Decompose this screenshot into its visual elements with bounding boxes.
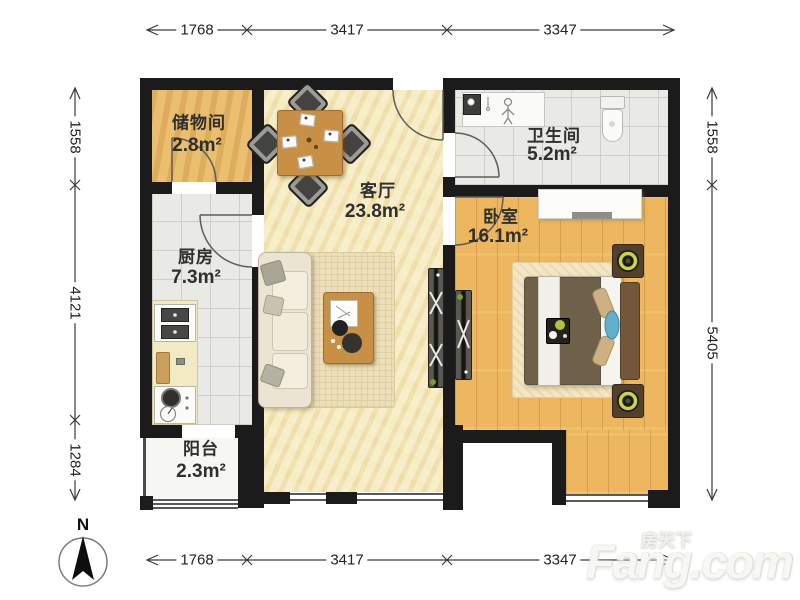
wall-top-right [443,78,680,90]
cutting-board [156,352,170,384]
sofa-pillow [262,294,285,317]
floorplan-image: 储物间 2.8m² 客厅 23.8m² 卫生间 5.2m² 卧室 16.1m² … [0,0,800,600]
dim-left-1: 1558 [67,116,84,157]
room-area-storage: 2.8m² [172,135,222,157]
north-arrow-icon [59,536,107,586]
dim-bottom-2: 3417 [326,552,367,569]
wall-bottom-post-a [252,492,290,504]
room-area-kitchen: 7.3m² [171,267,221,289]
wall-left [140,78,152,438]
bed-headboard [620,282,640,380]
tv-console-living [428,268,444,388]
dim-top-3: 3347 [539,22,580,39]
room-name-kitchen: 厨房 [178,243,214,268]
dim-right-1: 1558 [704,116,721,157]
dining-place-setting [281,135,297,149]
dining-place-setting [297,155,314,169]
kitchen-sink-basin [161,308,189,322]
bedroom-floor-lower [566,430,668,494]
room-area-balcony: 2.3m² [176,461,226,483]
nightstand-top [612,244,644,278]
nightstand-bottom [612,384,644,418]
stove [154,386,196,424]
bed-tray [546,318,570,344]
dim-top-1: 1768 [176,22,217,39]
room-area-bedroom: 16.1m² [468,226,528,248]
wall-balcony-corner [140,496,153,510]
kitchen-gadget [176,358,185,365]
wall-top-left [140,78,393,90]
room-area-bathroom: 5.2m² [527,144,577,166]
room-name-bedroom: 卧室 [483,203,519,228]
tv-console-bedroom [455,290,472,380]
dim-line-top [147,25,674,35]
dim-left-2: 4121 [67,282,84,323]
wall-storage-bottom-a [140,182,172,194]
wall-bottom-post-b [326,492,357,504]
room-name-bathroom: 卫生间 [527,122,581,147]
dim-left-3: 1284 [67,439,84,480]
dining-place-setting [324,129,340,142]
wall-bedroom-corner [648,490,680,508]
dim-right-2: 5405 [704,322,721,363]
bathroom-sink [463,94,481,115]
wall-bath-stub-top [443,90,455,133]
kitchen-sink-basin [161,325,189,339]
room-name-storage: 储物间 [172,109,226,134]
dining-place-setting [299,113,316,127]
wall-right [668,78,680,508]
wall-balcony-top-a [140,425,182,438]
wall-living-bedroom [443,245,455,430]
toilet-bowl [602,109,623,142]
coffee-table-tray [330,300,358,327]
wall-notch-top [443,430,566,443]
toilet-tank [600,96,625,109]
dim-bottom-1: 1768 [176,552,217,569]
room-name-living: 客厅 [360,177,396,202]
dim-bottom-3: 3347 [539,552,580,569]
wall-notch-right [552,443,566,505]
wardrobe-handle [572,212,612,219]
sofa-cushion [272,312,308,351]
room-name-balcony: 阳台 [183,435,219,460]
compass-north-label: N [77,515,89,535]
dim-top-2: 3417 [326,22,367,39]
room-area-living: 23.8m² [345,201,405,223]
watermark-logo: Fang.com [586,534,792,589]
